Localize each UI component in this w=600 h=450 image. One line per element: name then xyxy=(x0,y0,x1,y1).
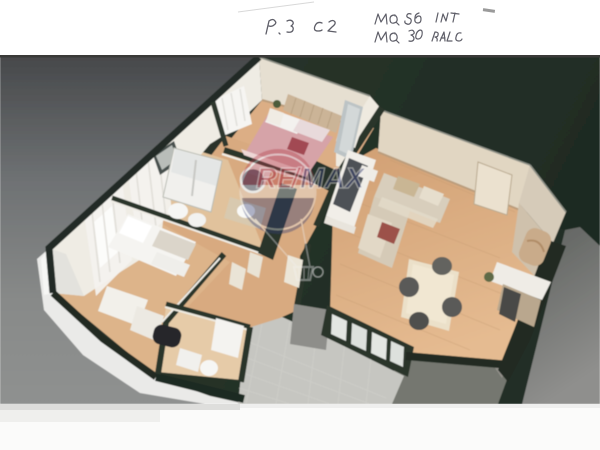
svg-text:MAX: MAX xyxy=(300,163,366,195)
